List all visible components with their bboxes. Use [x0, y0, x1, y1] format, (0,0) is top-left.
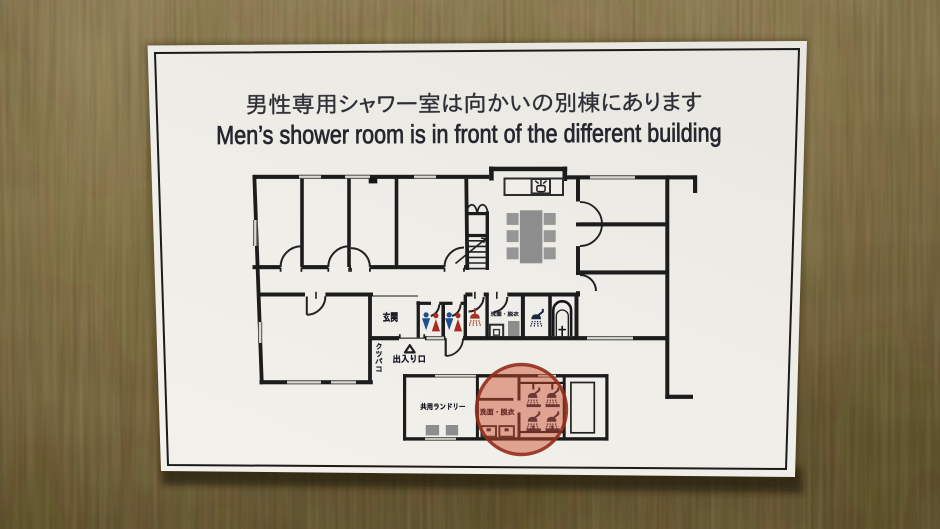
svg-text:Men’s shower room is in front: Men’s shower room is in front of the dif… [216, 119, 721, 150]
